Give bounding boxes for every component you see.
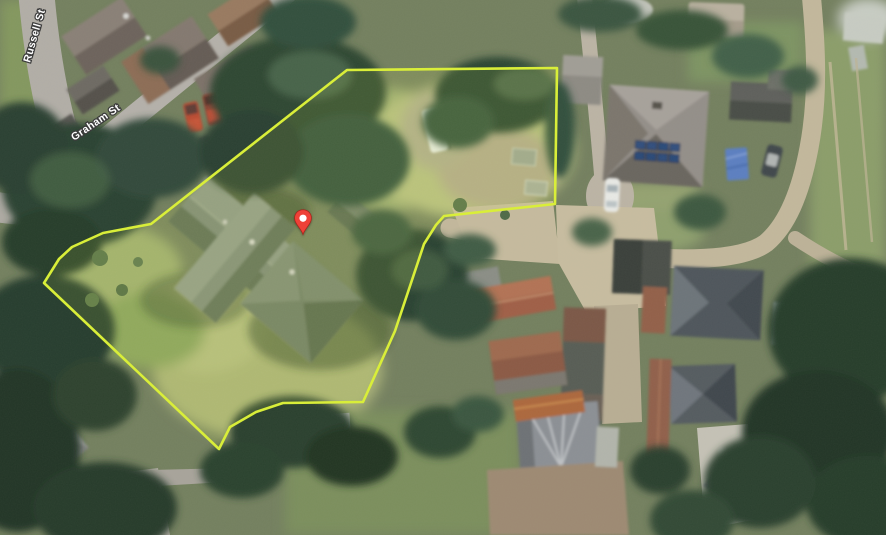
map-canvas[interactable]: Russell St Graham St (0, 0, 886, 535)
aerial-imagery: Russell St Graham St (0, 0, 886, 535)
pin-center-dot (299, 215, 306, 222)
location-pin[interactable] (293, 209, 313, 236)
pin-body (295, 210, 312, 235)
